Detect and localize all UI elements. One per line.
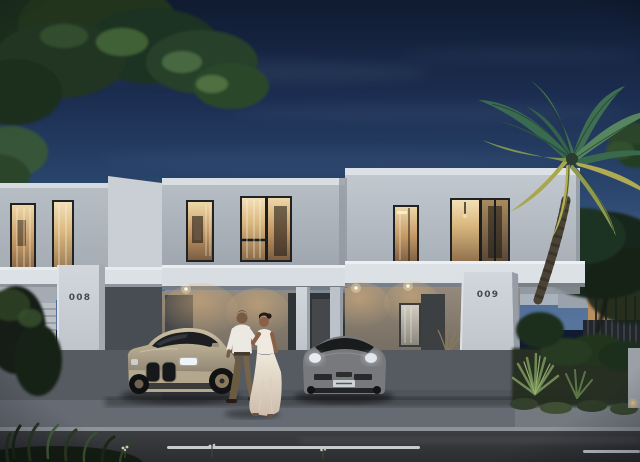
vignette: [0, 0, 640, 462]
villa-dusk-render: 008 009: [0, 0, 640, 462]
